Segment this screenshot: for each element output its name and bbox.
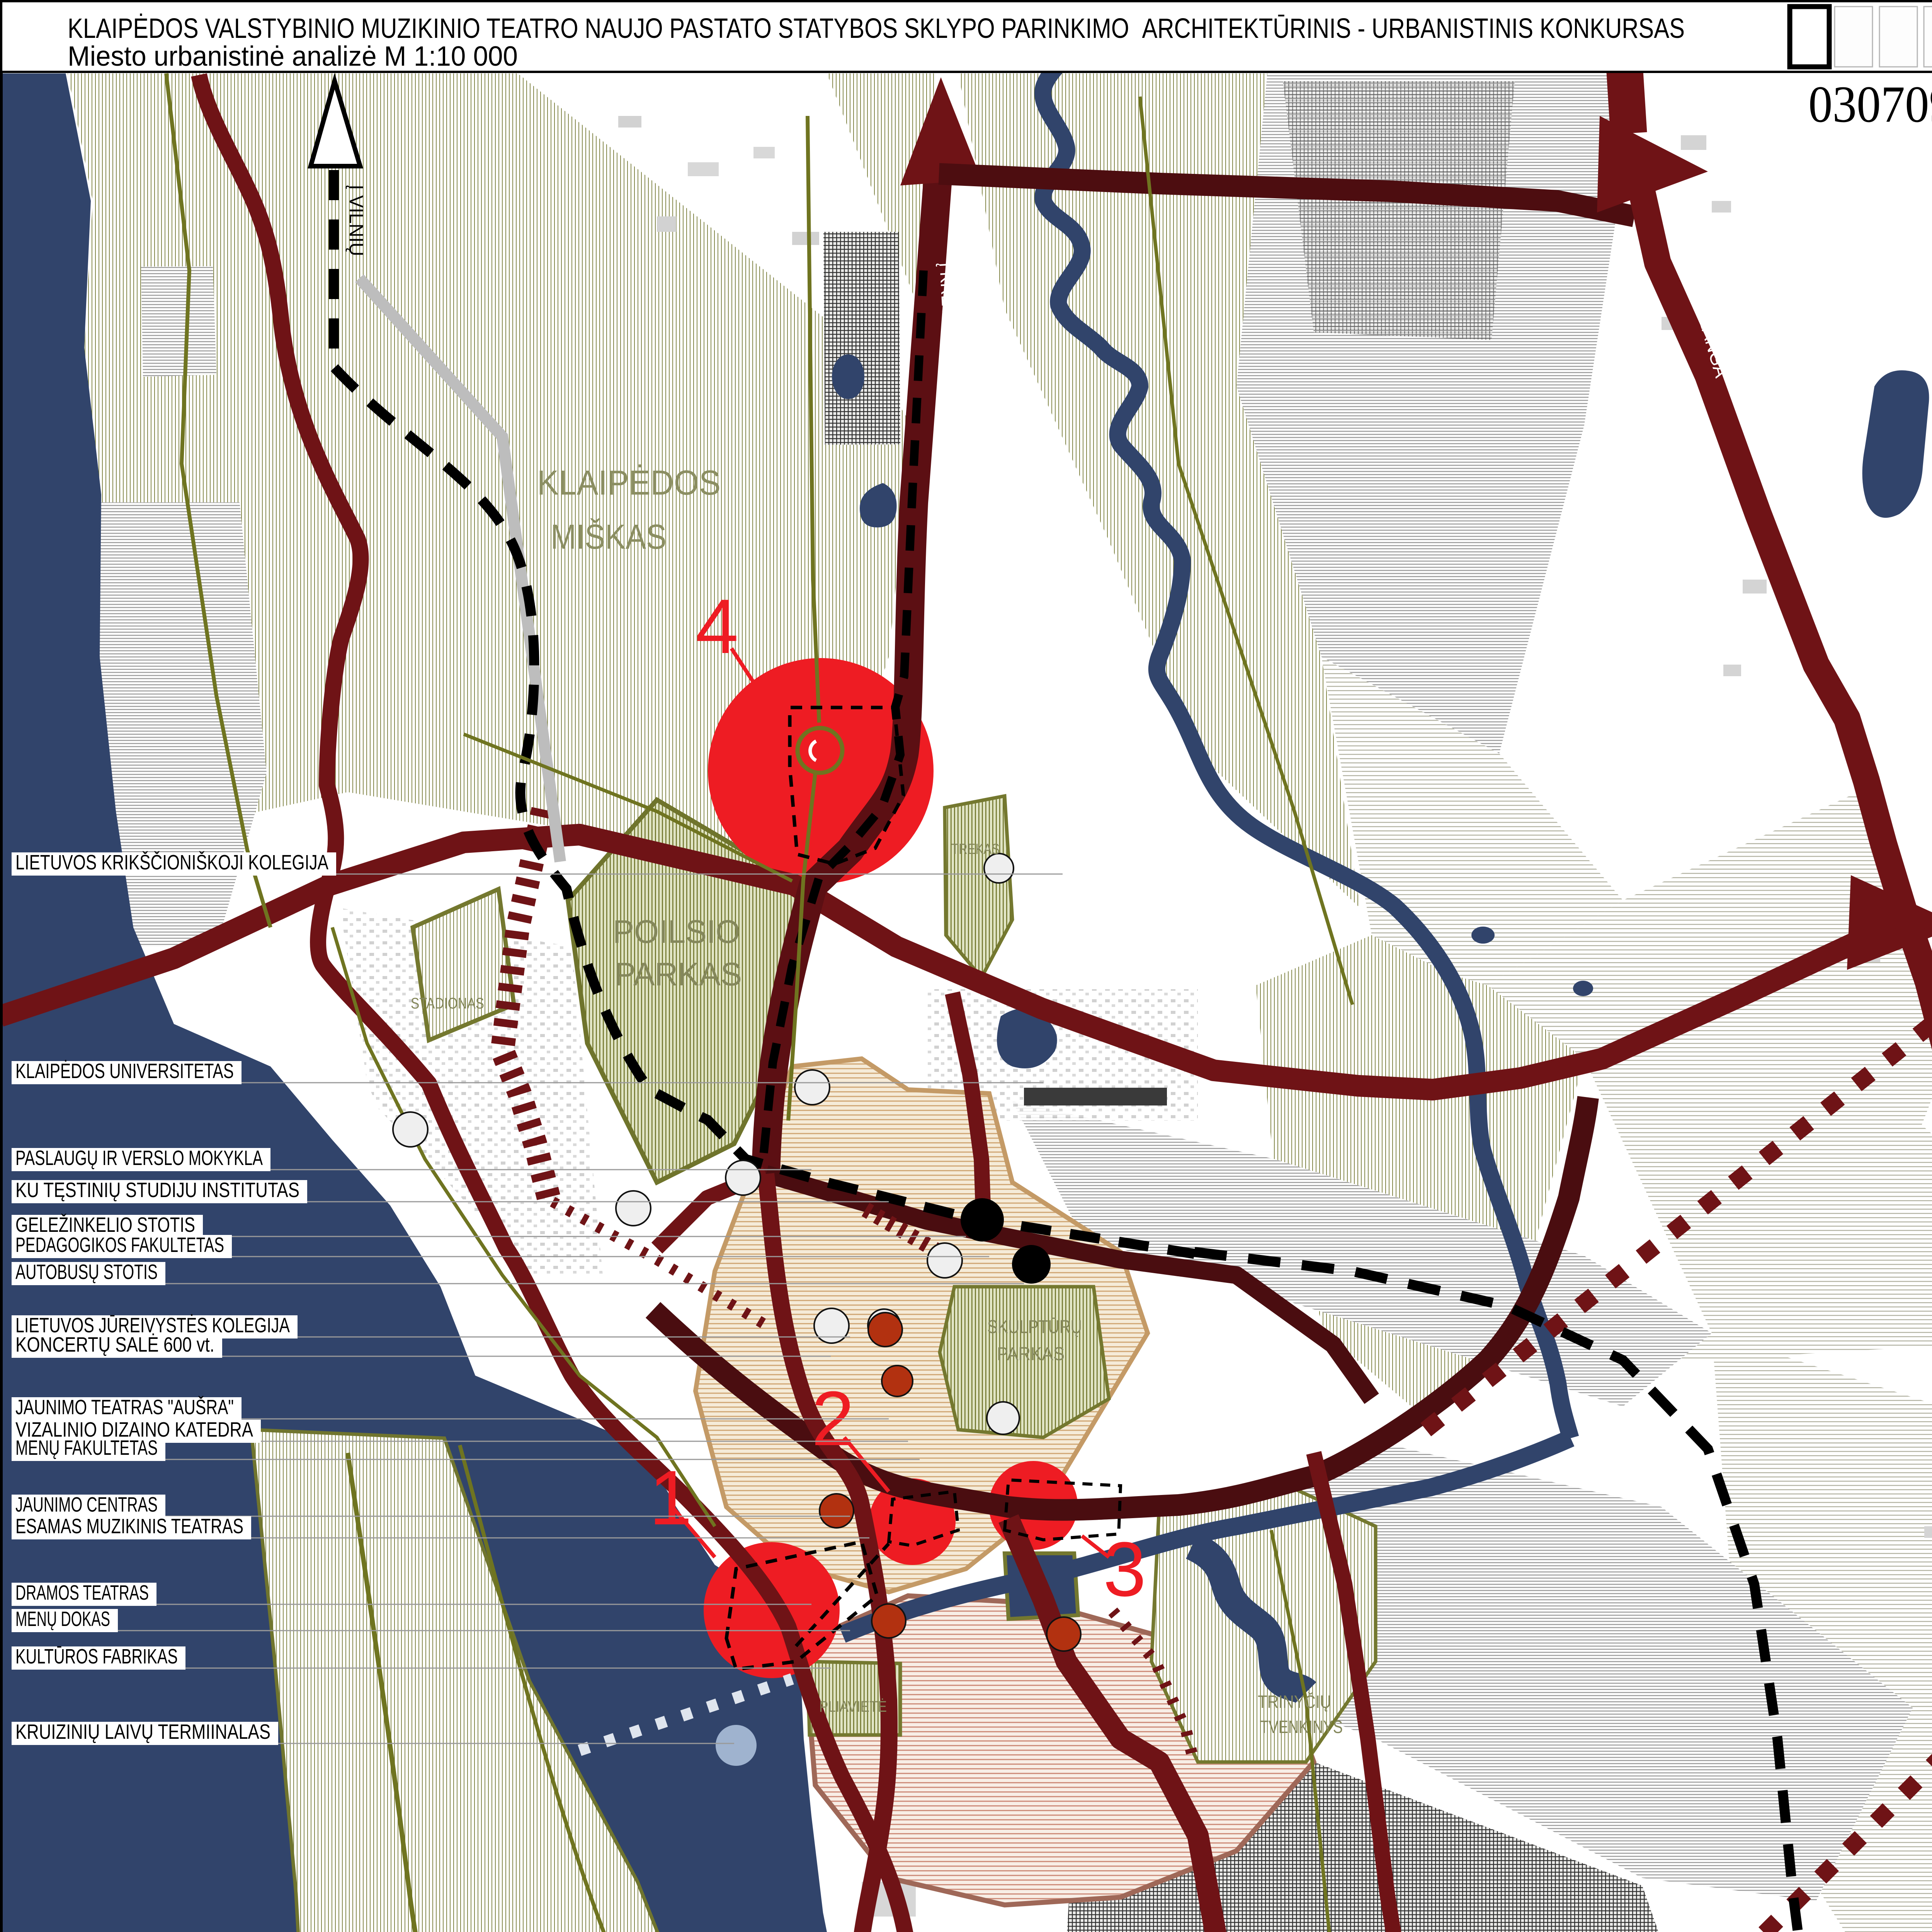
svg-text:KRUIZINIŲ LAIVŲ TERMIINALAS: KRUIZINIŲ LAIVŲ TERMIINALAS	[15, 1720, 270, 1743]
svg-text:Į VILNIŲ: Į VILNIŲ	[345, 185, 367, 256]
svg-text:TREKAS: TREKAS	[951, 841, 1000, 857]
svg-text:Miesto urbanistinė analizė M 1: Miesto urbanistinė analizė M 1:10 000	[68, 41, 518, 72]
svg-text:PASLAUGŲ IR VERSLO MOKYKLA: PASLAUGŲ IR VERSLO MOKYKLA	[15, 1146, 263, 1170]
svg-text:POILSIO: POILSIO	[613, 913, 740, 950]
svg-text:STADIONAS: STADIONAS	[411, 995, 484, 1012]
svg-text:KLAIPĖDOS: KLAIPĖDOS	[537, 464, 721, 502]
svg-text:DRAMOS TEATRAS: DRAMOS TEATRAS	[15, 1581, 149, 1604]
svg-text:1: 1	[649, 1455, 692, 1541]
svg-text:TVENKINYS: TVENKINYS	[1260, 1717, 1343, 1737]
svg-text:SKULPTŪRŲ: SKULPTŪRŲ	[987, 1317, 1082, 1337]
svg-text:JAUNIMO CENTRAS: JAUNIMO CENTRAS	[15, 1493, 158, 1516]
svg-text:LIETUVOS KRIKŠČIONIŠKOJI KOLEG: LIETUVOS KRIKŠČIONIŠKOJI KOLEGIJA	[15, 851, 328, 874]
svg-text:MENŲ FAKULTETAS: MENŲ FAKULTETAS	[15, 1436, 158, 1459]
svg-text:PARKAS: PARKAS	[997, 1344, 1065, 1364]
svg-text:KU TĘSTINIŲ STUDIJU INSTITUTAS: KU TĘSTINIŲ STUDIJU INSTITUTAS	[15, 1179, 299, 1202]
svg-text:AUTOBUSŲ STOTIS: AUTOBUSŲ STOTIS	[15, 1260, 158, 1284]
svg-text:4: 4	[696, 583, 738, 670]
svg-text:TRINYČIŲ: TRINYČIŲ	[1258, 1692, 1331, 1712]
svg-text:KULTŪROS FABRIKAS: KULTŪROS FABRIKAS	[15, 1645, 178, 1668]
svg-text:PARKAS: PARKAS	[614, 956, 742, 992]
svg-text:3: 3	[1103, 1526, 1146, 1612]
svg-text:PEDAGOGIKOS FAKULTETAS: PEDAGOGIKOS FAKULTETAS	[15, 1233, 224, 1257]
svg-text:KLAIPĖDOS VALSTYBINIO MUZIKINI: KLAIPĖDOS VALSTYBINIO MUZIKINIO TEATRO N…	[68, 13, 1685, 44]
svg-text:JAUNIMO TEATRAS "AUŠRA": JAUNIMO TEATRAS "AUŠRA"	[15, 1396, 234, 1419]
svg-text:PLIAVIETĖ: PLIAVIETĖ	[819, 1698, 887, 1715]
svg-text:GELEŽINKELIO STOTIS: GELEŽINKELIO STOTIS	[15, 1213, 195, 1236]
svg-text:KONCERTŲ SALĖ 600 vt.: KONCERTŲ SALĖ 600 vt.	[15, 1333, 214, 1356]
svg-text:KLAIPĖDOS UNIVERSITETAS: KLAIPĖDOS UNIVERSITETAS	[15, 1060, 234, 1083]
svg-text:030709: 030709	[1808, 76, 1932, 133]
svg-text:ESAMAS MUZIKINIS TEATRAS: ESAMAS MUZIKINIS TEATRAS	[15, 1515, 243, 1538]
svg-text:MENŲ DOKAS: MENŲ DOKAS	[15, 1607, 110, 1631]
svg-text:MIŠKAS: MIŠKAS	[551, 518, 667, 556]
